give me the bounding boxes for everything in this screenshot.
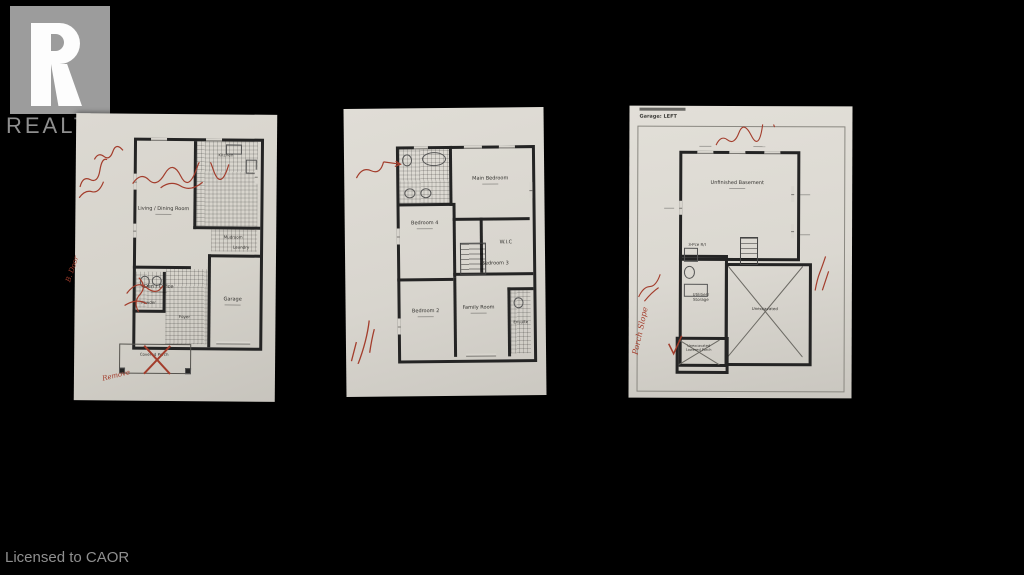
- dimension-mark: [482, 183, 498, 184]
- dimension-mark: [155, 214, 171, 215]
- room-label-living: Living / Dining Room: [138, 206, 190, 213]
- window: [397, 228, 400, 244]
- sink-fixture: [420, 188, 431, 198]
- room-label-bedroom3-alt: Bedroom 3: [481, 260, 508, 267]
- window: [679, 201, 682, 215]
- wall: [397, 278, 453, 282]
- room-label-laundry: Laundry: [233, 245, 249, 250]
- red-note-remove: Remove: [101, 368, 130, 382]
- room-label-family-room: Family Room: [463, 304, 495, 311]
- window: [729, 151, 745, 154]
- window: [764, 151, 780, 154]
- window: [464, 146, 482, 149]
- red-note-door: B. Door: [64, 255, 80, 283]
- window: [697, 151, 713, 154]
- room-label-wic: W.I.C: [500, 239, 513, 245]
- realtor-logo-r-bar: [31, 23, 51, 106]
- room-label-garage: Garage: [223, 296, 241, 302]
- window: [791, 186, 794, 202]
- red-scribble-annotation: [334, 309, 390, 365]
- red-scribble-annotation: [118, 264, 168, 319]
- plan-header: Garage: LEFT: [639, 114, 676, 120]
- room-label-kitchen: Kitchen: [218, 152, 233, 157]
- window: [791, 224, 794, 238]
- room-label-basement: Unfinished Basement: [711, 180, 764, 186]
- room-label-foyer: Foyer: [179, 314, 190, 319]
- red-scribble-annotation: [631, 266, 673, 302]
- realtor-logo-r-leg: [51, 64, 82, 106]
- license-text: Licensed to CAOR: [5, 549, 129, 566]
- shower-fixture: [684, 248, 698, 262]
- dimension-mark: [417, 228, 433, 229]
- floor-plan-page-basement: Garage: LEFT Unfinished Basement 3-Pce R…: [628, 106, 852, 399]
- red-scribble-annotation: [350, 144, 410, 185]
- room-label-mudroom: Mudroom: [224, 234, 243, 239]
- room-label-utilities: Utilities/ Storage: [688, 292, 714, 302]
- porch-post: [185, 368, 191, 374]
- window: [529, 182, 532, 198]
- dimension-mark: [225, 304, 241, 305]
- wall: [396, 203, 452, 207]
- red-check-mark: [665, 334, 685, 358]
- room-label-main-bedroom: Main Bedroom: [472, 175, 508, 182]
- staircase: [460, 243, 486, 275]
- room-label-unexcavated: Unexcavated: [752, 306, 778, 311]
- sink-fixture: [404, 188, 415, 198]
- wall: [208, 254, 260, 257]
- room-label-ensuite2: Ensuite: [513, 319, 528, 324]
- unexcavated-x-lines: [728, 266, 803, 357]
- red-scribble-annotation: [711, 124, 781, 150]
- window: [151, 138, 167, 141]
- window: [255, 170, 258, 184]
- room-label-bedroom4: Bedroom 4: [411, 220, 438, 227]
- dimension-mark: [418, 316, 434, 317]
- red-scribble-annotation: [801, 254, 841, 294]
- room-label-porch: Unexcavated Lowered Porch: [682, 344, 716, 353]
- window: [466, 353, 496, 356]
- window: [414, 146, 428, 149]
- toilet-fixture: [513, 297, 523, 308]
- floor-plan-page-second: Main Bedroom Ensuite Bedroom 4 W.I.C Bed…: [343, 107, 546, 397]
- dimension-mark: [729, 188, 745, 189]
- dimension-mark: [800, 234, 810, 235]
- floor-plan-page-main: Living / Dining Room Kitchen Mudroom Lau…: [74, 113, 277, 402]
- window: [206, 138, 222, 141]
- dimension-mark: [471, 313, 487, 314]
- dimension-mark: [800, 194, 810, 195]
- dimension-mark: [699, 146, 711, 147]
- room-label-rough-in: 3-Pce R/I: [686, 242, 708, 247]
- red-x-mark: [140, 344, 174, 376]
- red-scribble-annotation: [68, 139, 139, 200]
- foyer-tile-area: [165, 269, 208, 344]
- dimension-mark: [664, 208, 674, 209]
- toilet-fixture: [684, 266, 695, 279]
- realtor-logo: [10, 6, 110, 114]
- garage-door-opening: [216, 341, 250, 344]
- window: [398, 318, 401, 334]
- cropped-header-line: [639, 108, 685, 111]
- window: [499, 145, 515, 148]
- red-scribble-annotation: [131, 162, 241, 193]
- room-label-bedroom2: Bedroom 2: [412, 308, 439, 315]
- staircase: [740, 237, 758, 265]
- window: [133, 224, 136, 238]
